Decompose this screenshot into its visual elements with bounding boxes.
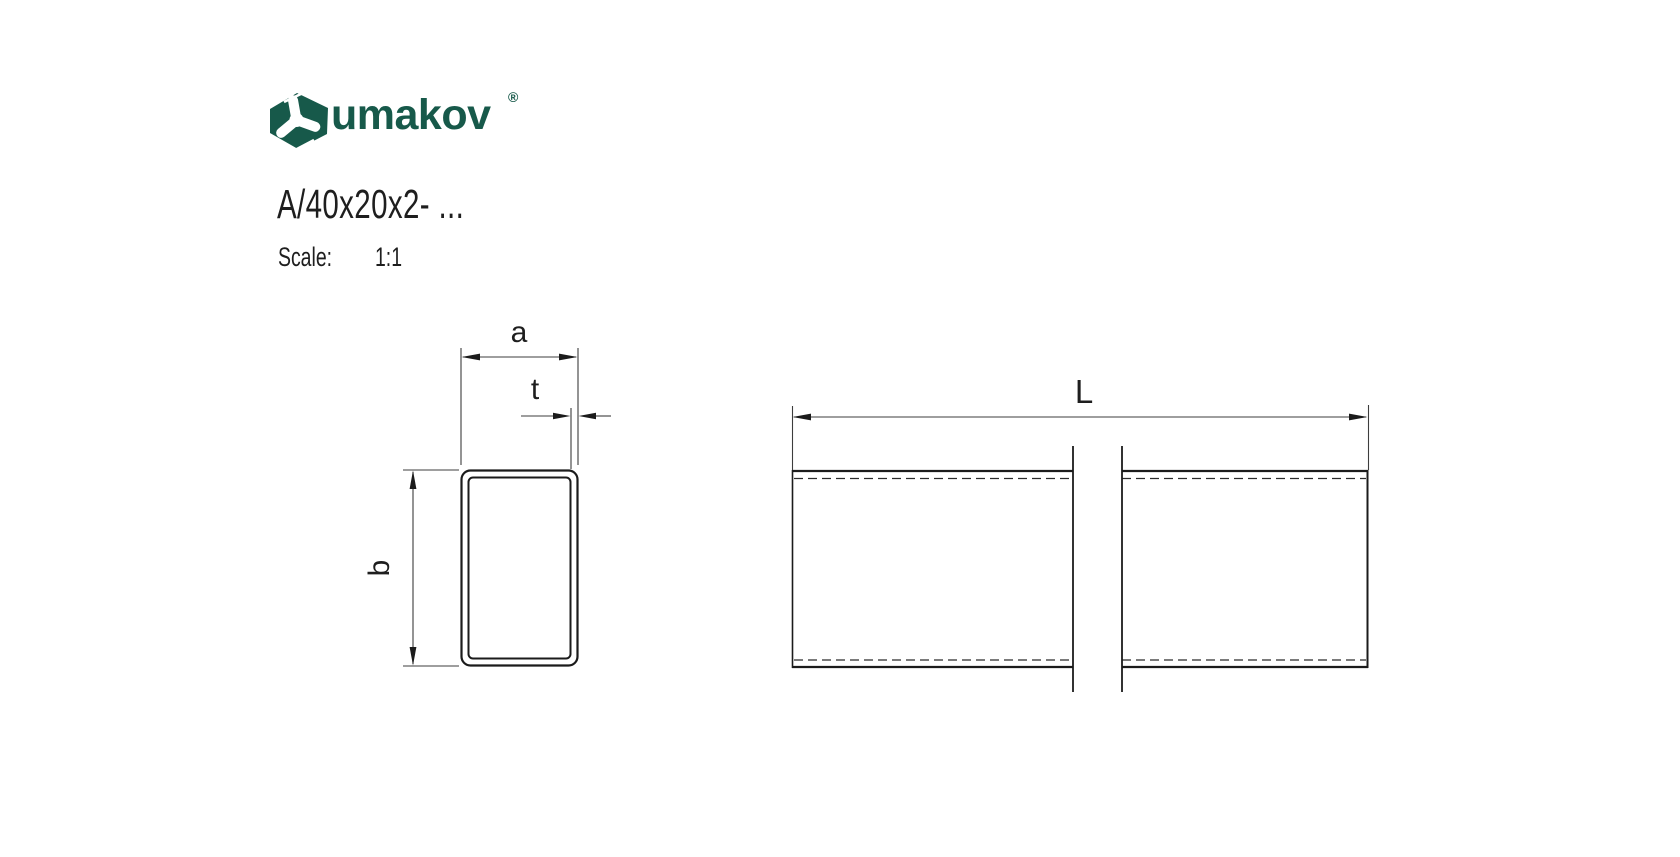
break-lines [1073,446,1122,692]
dimension-L: L [793,373,1369,470]
side-view: L [792,373,1369,692]
dim-label-t: t [531,373,540,406]
cross-section-view: a t b [363,316,611,666]
dimension-a: a [461,316,578,465]
dimension-b: b [363,470,459,666]
technical-drawing-page: umakov ® A/40x20x2- ... Scale: 1:1 a [0,0,1680,857]
tube-inner-contour [469,478,571,659]
dim-label-L: L [1075,373,1093,410]
dimension-t: t [521,373,611,469]
dimension-drawing: a t b [0,0,1680,857]
dim-label-b: b [363,560,396,577]
tube-outer-contour [462,471,578,666]
side-view-contour [792,470,1368,668]
hidden-wall-lines [794,479,1366,661]
dim-label-a: a [511,316,528,349]
